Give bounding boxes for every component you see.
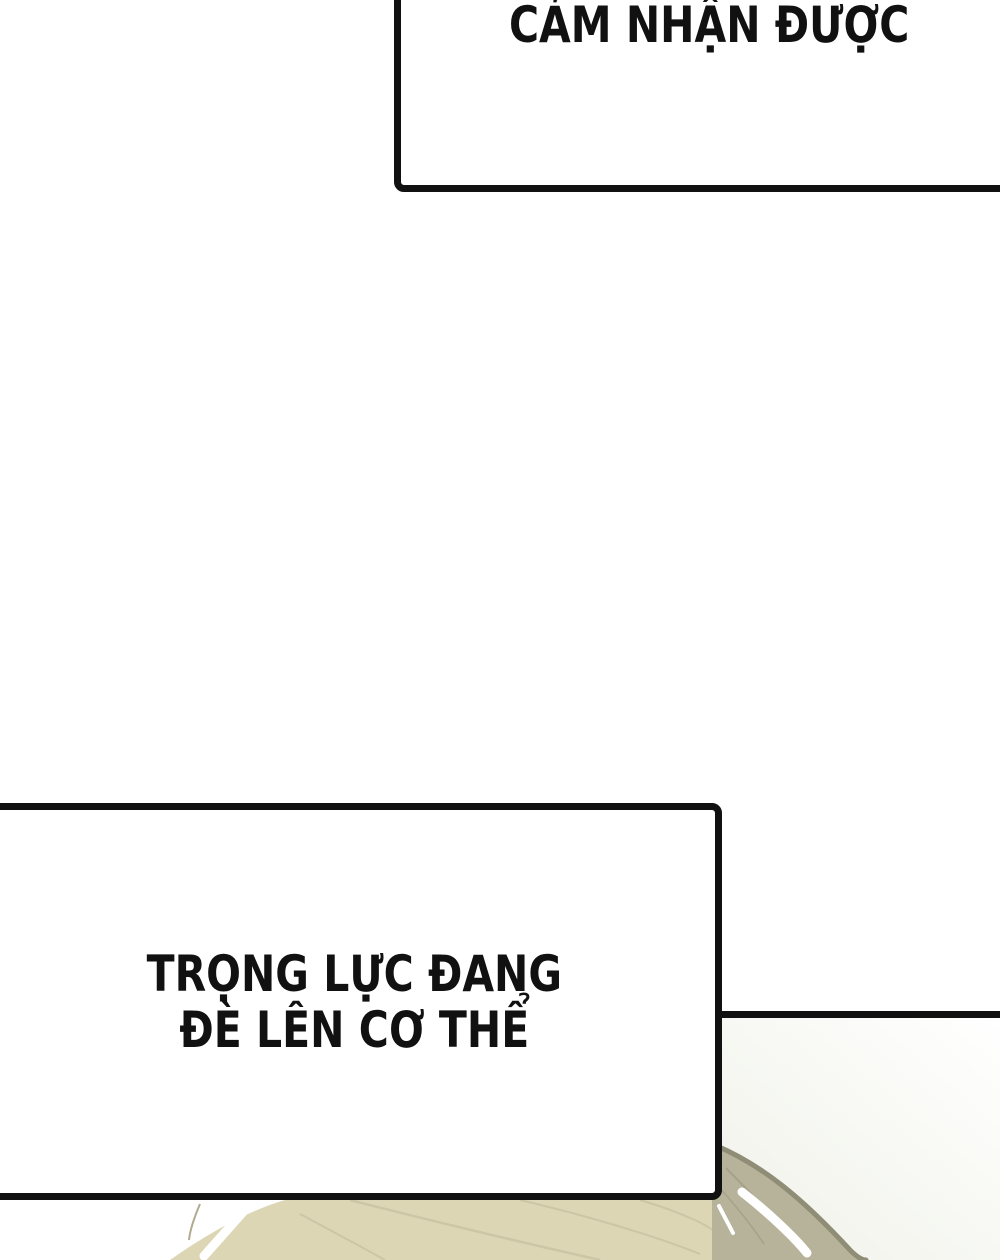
speech-box-top: CẢM NHẬN ĐƯỢC (394, 0, 1000, 192)
speech-text-top: CẢM NHẬN ĐƯỢC (509, 0, 909, 53)
panel-divider-line (715, 1011, 1000, 1018)
hair-strand-left-thin (189, 1204, 200, 1240)
speech-text-bottom-line1: TRỌNG LỰC ĐANG (146, 946, 561, 1002)
speech-text-bottom-line2: ĐÈ LÊN CƠ THỂ (179, 1002, 529, 1058)
comic-page: CẢM NHẬN ĐƯỢC TRỌNG LỰC ĐANG ĐÈ LÊN CƠ T… (0, 0, 1000, 1260)
speech-box-bottom: TRỌNG LỰC ĐANG ĐÈ LÊN CƠ THỂ (0, 803, 722, 1200)
